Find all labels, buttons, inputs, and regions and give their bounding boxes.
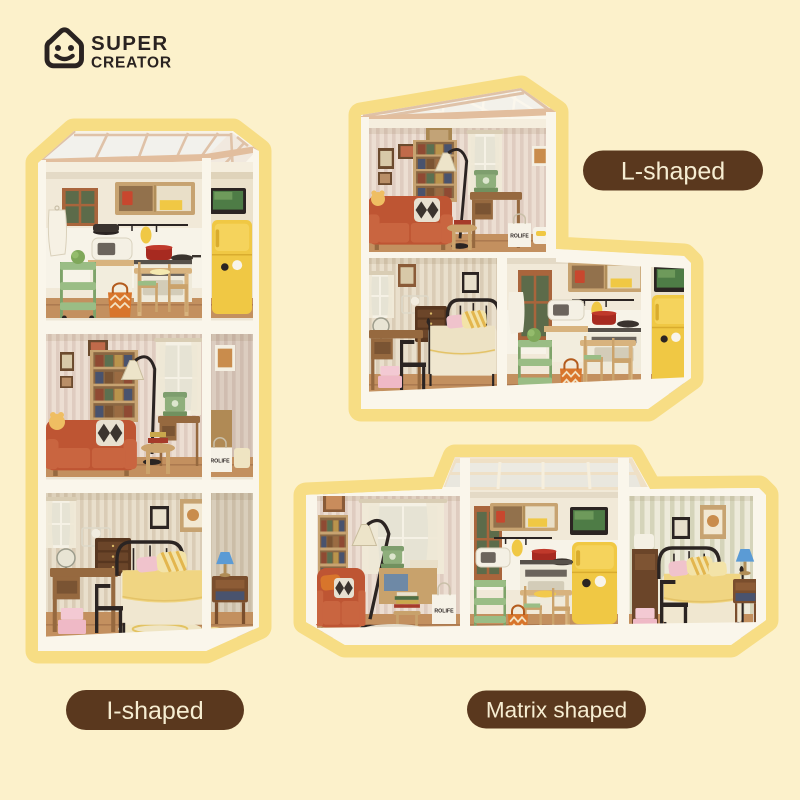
svg-text:ROLIFE: ROLIFE (434, 608, 454, 614)
svg-text:SUPER: SUPER (91, 32, 169, 55)
svg-text:I-shaped: I-shaped (106, 697, 203, 725)
svg-text:L-shaped: L-shaped (621, 157, 725, 185)
svg-text:ROLIFE: ROLIFE (210, 458, 230, 464)
svg-text:Matrix shaped: Matrix shaped (486, 697, 627, 722)
svg-text:CREATOR: CREATOR (91, 55, 172, 72)
svg-text:ROLIFE: ROLIFE (510, 234, 529, 240)
